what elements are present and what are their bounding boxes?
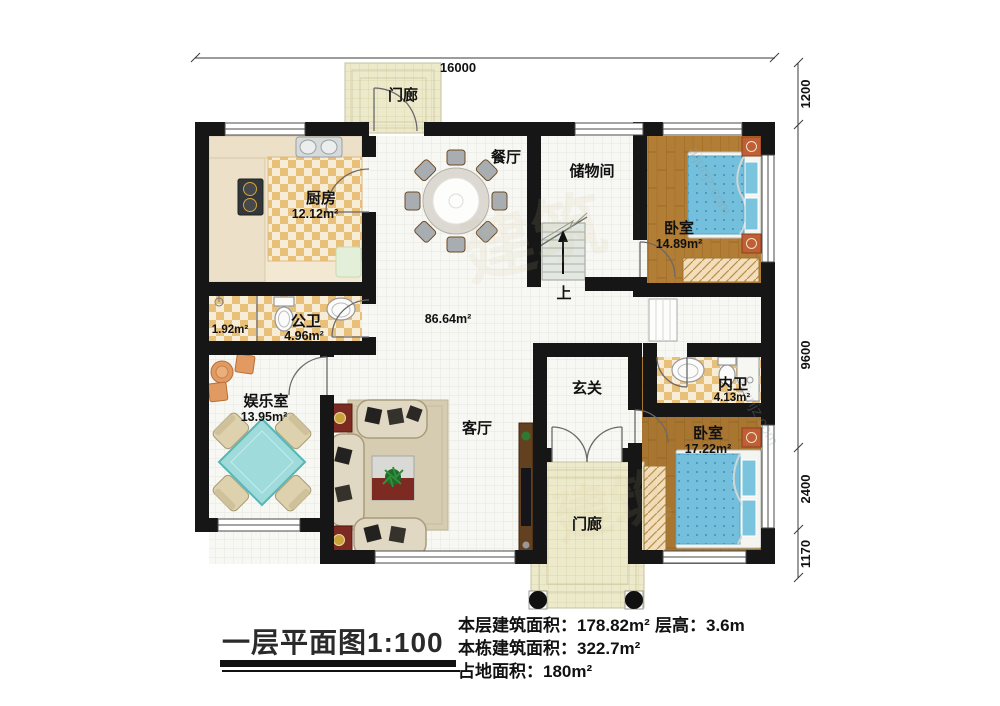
label-foyer: 玄关 xyxy=(572,379,602,397)
ottoman xyxy=(208,382,228,402)
building-area-value: 322.7m² xyxy=(577,639,641,658)
kitchen-mat xyxy=(336,247,361,277)
label-bath-ensuite-area: 4.13m² xyxy=(714,392,751,404)
floor-plan-page: 建筑 建筑 aijunjz.com aijunjz.com 门廊 厨房 12.1… xyxy=(0,0,1000,706)
floor-plan-drawing: 建筑 建筑 aijunjz.com aijunjz.com 门廊 厨房 12.1… xyxy=(0,0,1000,706)
label-kitchen: 厨房 xyxy=(306,189,336,207)
window-bedroom2-bottom xyxy=(663,551,746,563)
nightstand xyxy=(742,137,761,156)
label-bath-ensuite: 内卫 xyxy=(718,375,748,393)
wardrobe1 xyxy=(683,258,759,282)
toilet-tank xyxy=(718,357,736,365)
label-living: 客厅 xyxy=(461,419,492,437)
label-storage: 储物间 xyxy=(569,162,614,180)
pillow xyxy=(742,460,756,496)
label-bedroom2: 卧室 xyxy=(693,424,723,442)
dim-right-lower: 2400 xyxy=(798,475,813,504)
land-area-label: 占地面积： xyxy=(458,661,543,681)
title-underline-thick xyxy=(220,660,456,667)
window-bedroom1-right xyxy=(762,155,774,262)
title-underline-thin xyxy=(222,670,460,672)
label-dining: 餐厅 xyxy=(491,148,521,166)
pillow xyxy=(742,500,756,536)
kitchen-counter-left xyxy=(209,158,265,282)
plan-title: 一层平面图1:100 xyxy=(222,627,444,658)
height-label: 层高： xyxy=(655,615,706,635)
dim-right-bottom: 1170 xyxy=(798,540,813,568)
label-bedroom1: 卧室 xyxy=(664,219,694,237)
window-kitchen xyxy=(225,123,305,135)
pillow xyxy=(745,198,758,230)
height-value: 3.6m xyxy=(706,616,745,635)
building-area-label: 本栋建筑面积： xyxy=(458,638,577,658)
land-area-value: 180m² xyxy=(543,662,592,681)
label-porch-top: 门廊 xyxy=(388,86,418,104)
column xyxy=(625,591,643,609)
dim-right-top: 1200 xyxy=(798,80,813,109)
window-living xyxy=(375,551,515,563)
label-kitchen-area: 12.12m² xyxy=(292,207,339,221)
label-entertainment: 娱乐室 xyxy=(243,392,288,410)
floor-area-line: 本层建筑面积：178.82m² xyxy=(458,615,650,635)
height-line: 层高：3.6m xyxy=(655,615,745,635)
label-bath-main: 公卫 xyxy=(291,313,321,330)
tv xyxy=(521,468,531,526)
column xyxy=(529,591,547,609)
label-bedroom2-area: 17.22m² xyxy=(685,442,732,456)
floor-area-label: 本层建筑面积： xyxy=(458,615,577,635)
window-entertainment xyxy=(218,519,300,531)
land-area-line: 占地面积：180m² xyxy=(458,661,592,681)
window-storage xyxy=(575,123,643,135)
label-bath-shower-area: 1.92m² xyxy=(212,324,249,336)
pillow xyxy=(745,162,758,194)
sofa-left xyxy=(330,434,364,526)
nightstand xyxy=(742,234,761,253)
ottoman xyxy=(235,354,255,374)
label-entertainment-area: 13.95m² xyxy=(241,410,288,424)
building-area-line: 本栋建筑面积：322.7m² xyxy=(458,638,641,658)
toilet-tank xyxy=(274,297,294,306)
label-living-area: 86.64m² xyxy=(425,312,472,326)
label-bath-main-area: 4.96m² xyxy=(284,329,324,343)
dim-top: 16000 xyxy=(440,60,476,75)
label-porch-bottom: 门廊 xyxy=(572,515,602,533)
label-stairs-up: 上 xyxy=(556,285,571,302)
window-bedroom1-top xyxy=(663,123,742,135)
label-bedroom1-area: 14.89m² xyxy=(656,237,703,251)
dim-right-middle: 9600 xyxy=(798,341,813,370)
floor-area-value: 178.82m² xyxy=(577,616,650,635)
